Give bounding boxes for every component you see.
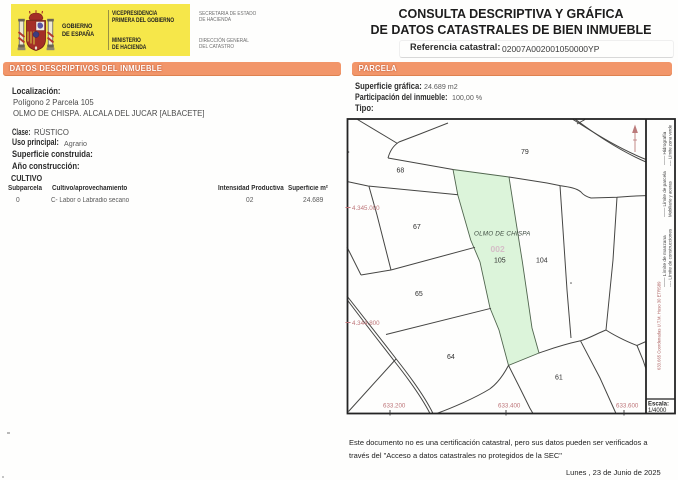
svg-text:64: 64: [447, 354, 455, 361]
svg-text:---- Límite de construcciones: ---- Límite de construcciones: [668, 228, 673, 287]
svg-text:633.600: 633.600: [616, 403, 639, 410]
svg-text:61: 61: [555, 375, 563, 382]
svg-text:105: 105: [494, 258, 506, 265]
svg-text:—— Hidrografía: —— Hidrografía: [662, 131, 667, 165]
svg-text:67: 67: [413, 224, 421, 231]
svg-text:633.200: 633.200: [383, 403, 406, 410]
svg-text:1/4000: 1/4000: [648, 408, 667, 414]
svg-text:4.345.000: 4.345.000: [352, 205, 380, 212]
svg-text:633.400: 633.400: [498, 403, 521, 410]
svg-text:Mobiliario y aceras: Mobiliario y aceras: [668, 181, 673, 217]
svg-text:Escala:: Escala:: [648, 402, 669, 408]
svg-text:79: 79: [521, 149, 529, 156]
svg-text:4.344.800: 4.344.800: [352, 320, 380, 327]
svg-text:68: 68: [397, 168, 405, 175]
svg-text:633.665 Coordenadas U.T.M. Hus: 633.665 Coordenadas U.T.M. Huso 30 ETRS8…: [657, 281, 662, 370]
svg-text:OLMO DE CHISPA: OLMO DE CHISPA: [474, 231, 531, 238]
svg-text:104: 104: [536, 258, 548, 265]
svg-text:002: 002: [491, 244, 505, 254]
svg-text:65: 65: [415, 291, 423, 298]
svg-text:---- Límite zona verde: ---- Límite zona verde: [668, 124, 673, 166]
svg-text:—— Límite de parcela: —— Límite de parcela: [662, 171, 667, 217]
